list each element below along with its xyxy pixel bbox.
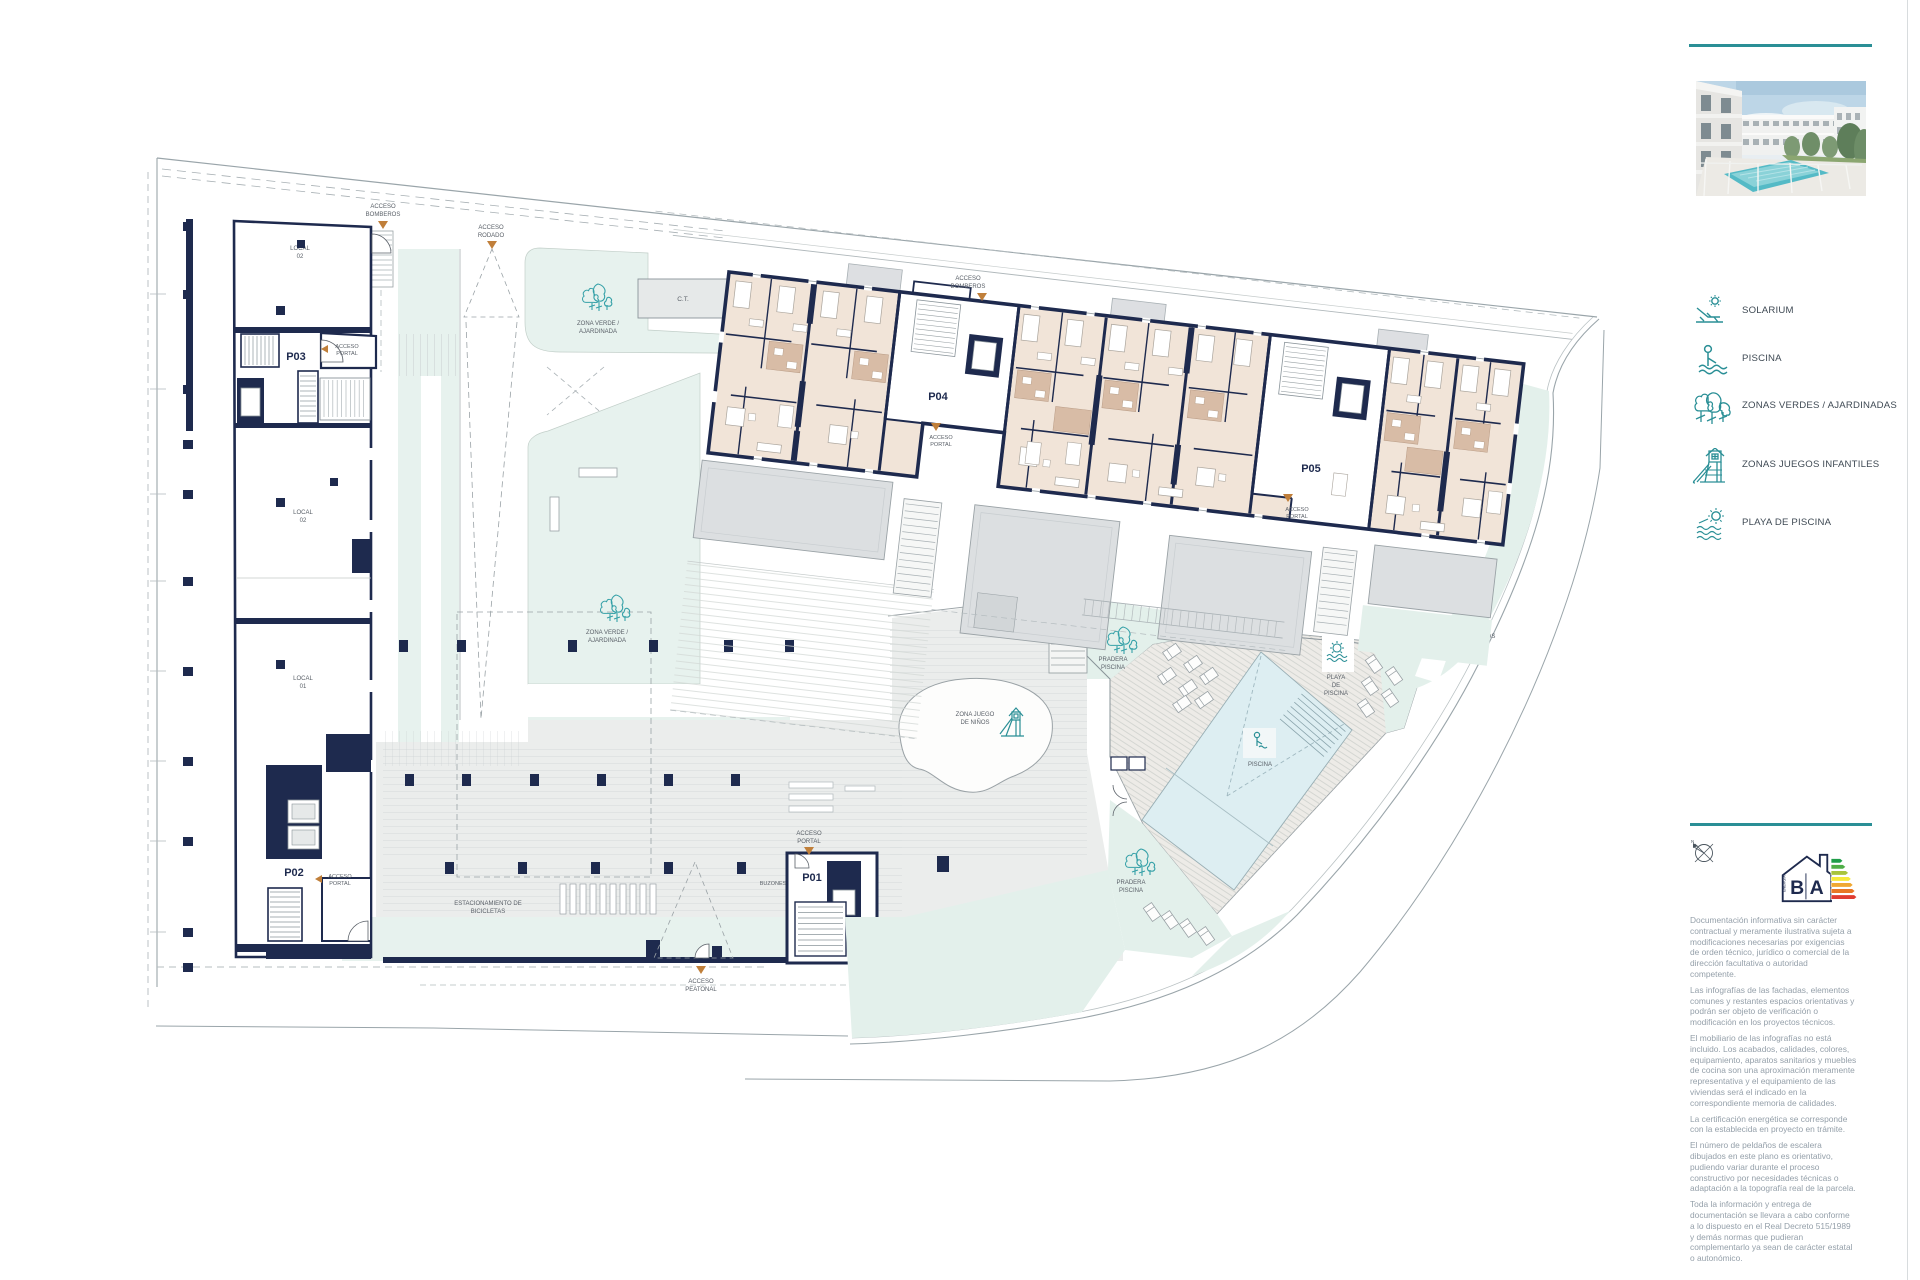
svg-text:BOMBEROS: BOMBEROS: [366, 212, 401, 218]
svg-text:DE: DE: [1332, 683, 1340, 689]
svg-text:PORTAL: PORTAL: [329, 881, 351, 887]
svg-text:RODADO: RODADO: [478, 233, 505, 239]
svg-text:LOCAL: LOCAL: [293, 510, 313, 516]
svg-text:ENERGÍA: ENERGÍA: [1783, 875, 1787, 892]
svg-text:PISCINA: PISCINA: [1324, 691, 1348, 697]
svg-text:AJARDINADA: AJARDINADA: [588, 638, 626, 644]
svg-text:C.T.: C.T.: [677, 296, 689, 303]
svg-text:ACCESO: ACCESO: [370, 204, 396, 210]
svg-text:PISCINA: PISCINA: [1101, 665, 1125, 671]
svg-text:ACCESO: ACCESO: [335, 344, 359, 350]
svg-text:ZONA VERDE /: ZONA VERDE /: [586, 630, 628, 636]
svg-text:ACCESO: ACCESO: [478, 225, 504, 231]
svg-text:BUZONES: BUZONES: [760, 881, 787, 887]
svg-text:P05: P05: [1301, 463, 1321, 475]
svg-text:PEATONAL: PEATONAL: [685, 987, 717, 993]
svg-text:PORTAL: PORTAL: [930, 442, 952, 448]
svg-text:PRADERA: PRADERA: [1116, 880, 1145, 886]
svg-text:LOCAL: LOCAL: [293, 676, 313, 682]
svg-text:PORTAL: PORTAL: [336, 351, 358, 357]
svg-text:P01: P01: [802, 872, 822, 884]
svg-text:ZONA JUEGO: ZONA JUEGO: [956, 712, 995, 718]
svg-text:ACCESO: ACCESO: [328, 874, 352, 880]
svg-text:ACCESO: ACCESO: [796, 831, 822, 837]
svg-text:ACCESO: ACCESO: [955, 276, 981, 282]
svg-text:ACCESO: ACCESO: [929, 435, 953, 441]
svg-text:ZONA VERDE /: ZONA VERDE /: [577, 321, 619, 327]
svg-text:BOMBEROS: BOMBEROS: [951, 284, 986, 290]
svg-text:PLAYA: PLAYA: [1327, 675, 1345, 681]
svg-text:02: 02: [297, 254, 304, 260]
svg-text:P02: P02: [284, 867, 304, 879]
svg-text:P03: P03: [286, 351, 306, 363]
svg-text:01: 01: [300, 684, 307, 690]
svg-text:ACCESO: ACCESO: [1285, 507, 1309, 513]
svg-text:ACCESO: ACCESO: [688, 979, 714, 985]
svg-text:PORTAL: PORTAL: [797, 839, 821, 845]
svg-text:A: A: [1810, 877, 1824, 899]
svg-text:ESTACIONAMIENTO DE: ESTACIONAMIENTO DE: [454, 901, 521, 907]
svg-text:PORTAL: PORTAL: [1286, 514, 1308, 520]
svg-text:02: 02: [300, 518, 307, 524]
svg-text:PRADERA: PRADERA: [1098, 657, 1127, 663]
svg-text:BICICLETAS: BICICLETAS: [471, 909, 506, 915]
svg-text:B: B: [1790, 877, 1804, 899]
svg-text:N: N: [1691, 839, 1694, 844]
svg-text:PISCINA: PISCINA: [1248, 762, 1272, 768]
svg-text:DE NIÑOS: DE NIÑOS: [960, 719, 989, 726]
svg-text:PISCINA: PISCINA: [1119, 888, 1143, 894]
svg-text:AJARDINADA: AJARDINADA: [579, 329, 617, 335]
svg-text:P04: P04: [928, 391, 948, 403]
